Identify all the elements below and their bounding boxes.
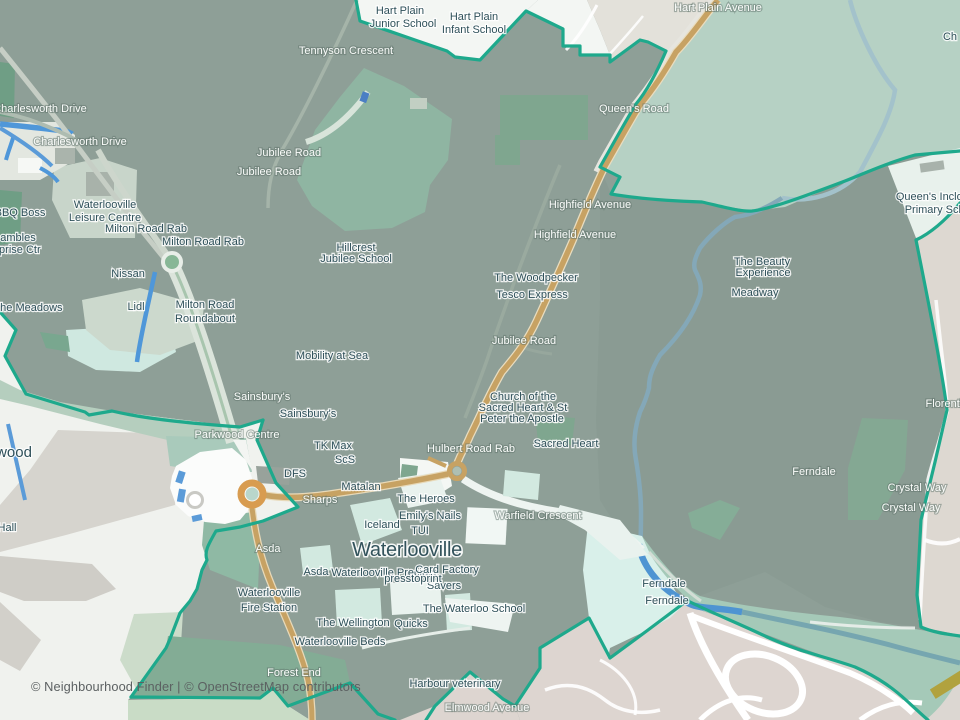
svg-text:Roundabout: Roundabout bbox=[175, 313, 235, 325]
svg-text:Meadway: Meadway bbox=[731, 287, 779, 299]
svg-text:Nissan: Nissan bbox=[111, 268, 145, 280]
svg-text:Sacred Heart: Sacred Heart bbox=[534, 438, 599, 450]
svg-text:The Heroes: The Heroes bbox=[397, 493, 455, 505]
svg-text:Hulbert Road Rab: Hulbert Road Rab bbox=[427, 443, 515, 455]
svg-text:Crystal Way: Crystal Way bbox=[882, 502, 941, 514]
svg-text:rprise Ctr: rprise Ctr bbox=[0, 244, 41, 256]
svg-text:Queen's Inclosure: Queen's Inclosure bbox=[896, 191, 960, 203]
svg-text:The Waterloo School: The Waterloo School bbox=[423, 603, 525, 615]
svg-text:Asda: Asda bbox=[303, 566, 329, 578]
svg-text:Charlesworth Drive: Charlesworth Drive bbox=[33, 136, 127, 148]
svg-text:presstoprint: presstoprint bbox=[384, 573, 441, 585]
svg-text:BBQ Boss: BBQ Boss bbox=[0, 207, 46, 219]
svg-text:Hart Plain Avenue: Hart Plain Avenue bbox=[674, 2, 762, 14]
svg-text:Iceland: Iceland bbox=[364, 519, 399, 531]
svg-text:Junior School: Junior School bbox=[370, 18, 437, 30]
svg-text:Queen's Road: Queen's Road bbox=[599, 103, 669, 115]
svg-text:ambles: ambles bbox=[0, 232, 36, 244]
svg-text:Sainsbury's: Sainsbury's bbox=[280, 408, 337, 420]
svg-text:Experience: Experience bbox=[735, 267, 790, 279]
svg-text:Hart Plain: Hart Plain bbox=[376, 5, 424, 17]
svg-text:Jubilee Road: Jubilee Road bbox=[492, 335, 556, 347]
svg-text:© Neighbourhood Finder | © Ope: © Neighbourhood Finder | © OpenStreetMap… bbox=[31, 679, 361, 694]
svg-text:Tesco Express: Tesco Express bbox=[496, 289, 568, 301]
svg-text:Ferndale: Ferndale bbox=[642, 578, 685, 590]
svg-text:Fire Station: Fire Station bbox=[241, 602, 297, 614]
svg-text:The Meadows: The Meadows bbox=[0, 302, 63, 314]
svg-text:Sharps: Sharps bbox=[303, 494, 338, 506]
svg-text:Emily's Nails: Emily's Nails bbox=[399, 510, 461, 522]
svg-text:Peter the Apostle: Peter the Apostle bbox=[480, 413, 564, 425]
svg-text:Milton Road Rab: Milton Road Rab bbox=[162, 236, 244, 248]
svg-text:Sainsbury's: Sainsbury's bbox=[234, 391, 291, 403]
svg-text:DFS: DFS bbox=[284, 468, 306, 480]
svg-text:Milton Road Rab: Milton Road Rab bbox=[105, 223, 187, 235]
svg-text:Parkwood Centre: Parkwood Centre bbox=[195, 429, 280, 441]
svg-text:Waterlooville: Waterlooville bbox=[238, 587, 301, 599]
svg-text:Infant School: Infant School bbox=[442, 24, 506, 36]
svg-text:Warfield Crescent: Warfield Crescent bbox=[494, 510, 581, 522]
svg-text:Hart Plain: Hart Plain bbox=[450, 11, 498, 23]
svg-text:The Woodpecker: The Woodpecker bbox=[494, 272, 578, 284]
svg-text:ScS: ScS bbox=[335, 454, 355, 466]
svg-text:Waterlooville: Waterlooville bbox=[74, 199, 137, 211]
svg-text:Charlesworth Drive: Charlesworth Drive bbox=[0, 103, 87, 115]
svg-text:Hall: Hall bbox=[0, 522, 16, 534]
svg-text:Florentine: Florentine bbox=[926, 398, 960, 410]
svg-text:Elmwood Avenue: Elmwood Avenue bbox=[445, 702, 530, 714]
svg-text:Crystal Way: Crystal Way bbox=[888, 482, 947, 494]
svg-text:The Wellington: The Wellington bbox=[316, 617, 389, 629]
svg-text:Highfield Avenue: Highfield Avenue bbox=[534, 229, 616, 241]
svg-text:Harbour veterinary: Harbour veterinary bbox=[409, 678, 501, 690]
svg-text:TUI: TUI bbox=[411, 525, 429, 537]
svg-text:Waterlooville Beds: Waterlooville Beds bbox=[295, 636, 386, 648]
svg-text:Jubilee School: Jubilee School bbox=[320, 253, 392, 265]
svg-text:Milton Road: Milton Road bbox=[176, 299, 235, 311]
svg-text:Mobility at Sea: Mobility at Sea bbox=[296, 350, 369, 362]
svg-text:TK Max: TK Max bbox=[314, 440, 352, 452]
svg-text:Tennyson Crescent: Tennyson Crescent bbox=[299, 45, 393, 57]
svg-text:wood: wood bbox=[0, 444, 32, 461]
svg-text:Lidl: Lidl bbox=[127, 301, 144, 313]
svg-text:Waterlooville: Waterlooville bbox=[352, 539, 462, 561]
svg-text:Quicks: Quicks bbox=[394, 618, 428, 630]
svg-text:Jubilee Road: Jubilee Road bbox=[257, 147, 321, 159]
svg-text:Jubilee Road: Jubilee Road bbox=[237, 166, 301, 178]
svg-text:Forest End: Forest End bbox=[267, 667, 321, 679]
svg-text:Ch: Ch bbox=[943, 31, 957, 43]
svg-text:Primary School: Primary School bbox=[905, 204, 960, 216]
svg-text:Ferndale: Ferndale bbox=[792, 466, 835, 478]
svg-text:Asda: Asda bbox=[255, 543, 281, 555]
svg-text:Ferndale: Ferndale bbox=[645, 595, 688, 607]
svg-text:Highfield Avenue: Highfield Avenue bbox=[549, 199, 631, 211]
svg-text:Matalan: Matalan bbox=[341, 481, 380, 493]
